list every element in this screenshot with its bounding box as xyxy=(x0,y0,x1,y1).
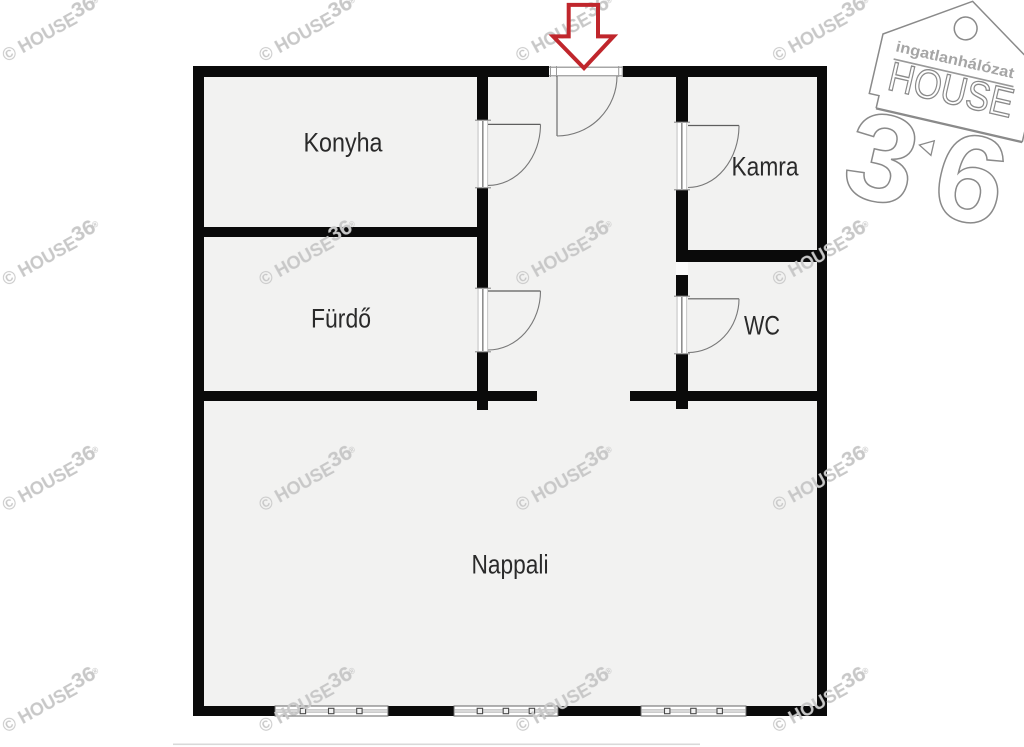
svg-text:Nappali: Nappali xyxy=(472,550,549,580)
svg-text:Kamra: Kamra xyxy=(732,152,799,182)
svg-text:Fürdő: Fürdő xyxy=(311,304,371,334)
svg-text:© HOUSE36®: © HOUSE36® xyxy=(765,0,875,66)
svg-text:© HOUSE36®: © HOUSE36® xyxy=(252,0,362,66)
svg-text:WC: WC xyxy=(744,311,780,341)
svg-text:© HOUSE36®: © HOUSE36® xyxy=(509,0,619,66)
svg-text:© HOUSE36®: © HOUSE36® xyxy=(0,212,105,290)
svg-text:6: 6 xyxy=(921,104,1019,254)
svg-text:Konyha: Konyha xyxy=(304,128,383,158)
svg-text:© HOUSE36®: © HOUSE36® xyxy=(0,438,105,516)
svg-text:3: 3 xyxy=(833,84,931,234)
svg-text:© HOUSE36®: © HOUSE36® xyxy=(0,659,105,737)
svg-text:© HOUSE36®: © HOUSE36® xyxy=(0,0,105,66)
